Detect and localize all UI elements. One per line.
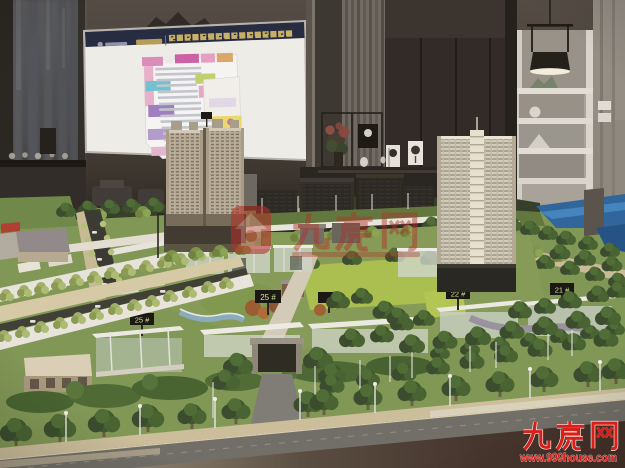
svg-text:www.999house.com: www.999house.com bbox=[519, 452, 617, 465]
